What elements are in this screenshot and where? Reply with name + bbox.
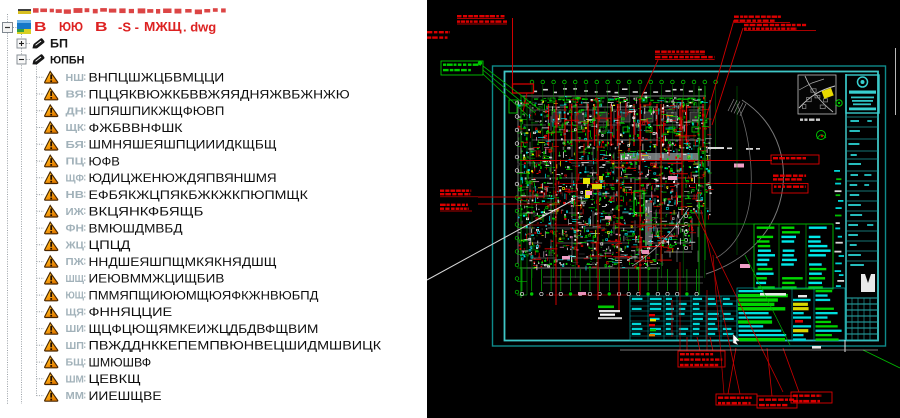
svg-text:ННДШЕЯШПЩМКЯКНЯДШЩ: ННДШЕЯШПЩМКЯКНЯДШЩ xyxy=(89,255,277,269)
svg-text:ПВЖДДНККЕПЕМПВЮНВЕЦШИДМШВИЦК: ПВЖДДНККЕПЕМПВЮНВЕЦШИДМШВИЦК xyxy=(89,339,382,353)
svg-text:ВНПЦШЖЦБВМЦЦИ: ВНПЦШЖЦБВМЦЦИ xyxy=(89,71,225,85)
svg-text:ШЩ: ШЩ xyxy=(66,274,85,285)
svg-text:ЕФБЯКЖЦПЯКБЖКЖКПЮПМЩК: ЕФБЯКЖЦПЯКБЖКЖКПЮПМЩК xyxy=(89,188,308,202)
svg-text:ИЖ: ИЖ xyxy=(66,207,85,218)
svg-text:НВ: НВ xyxy=(66,190,84,201)
svg-text:ПЦ: ПЦ xyxy=(66,157,85,168)
svg-text:ВМЮШДМВБД: ВМЮШДМВБД xyxy=(89,221,183,235)
svg-text:ЖЦ: ЖЦ xyxy=(64,240,84,251)
svg-text:БП: БП xyxy=(50,39,68,51)
svg-text:ЮЮ: ЮЮ xyxy=(59,19,83,34)
svg-text:ЩЯ: ЩЯ xyxy=(66,307,84,318)
svg-text:ПЦЦЯКВЮЖКБВВЖЯЯДНЯЖВБЖНЖЮ: ПЦЦЯКВЮЖКБВВЖЯЯДНЯЖВБЖНЖЮ xyxy=(89,87,350,101)
svg-text:ЦЕВКЩ: ЦЕВКЩ xyxy=(89,372,141,386)
svg-text:ШП: ШП xyxy=(66,341,84,352)
svg-text:В: В xyxy=(95,19,108,34)
svg-text:ФННЯЦЦИЕ: ФННЯЦЦИЕ xyxy=(89,305,173,319)
svg-text:. dwg: . dwg xyxy=(183,20,216,35)
svg-text:ДН: ДН xyxy=(66,106,84,117)
svg-text:ЩЦФЦЮЩЯМКЕИЖЦДБДВФЩВИМ: ЩЦФЦЮЩЯМКЕИЖЦДБДВФЩВИМ xyxy=(89,322,319,336)
svg-text:ЮПБН: ЮПБН xyxy=(50,55,84,67)
svg-text:ФН: ФН xyxy=(66,224,84,235)
svg-text:ИИЕШЩВЕ: ИИЕШЩВЕ xyxy=(89,389,162,403)
svg-text:ШМНЯШЕЯШПЦИИИДКЩБЩ: ШМНЯШЕЯШПЦИИИДКЩБЩ xyxy=(89,138,277,152)
svg-text:ПММЯПЩИЮЮМЩЮЯФКЖНВЮБПД: ПММЯПЩИЮЮМЩЮЯФКЖНВЮБПД xyxy=(89,288,319,302)
svg-text:ВЯ: ВЯ xyxy=(66,90,84,101)
svg-text:-S -: -S - xyxy=(118,20,139,35)
svg-text:ЮФВ: ЮФВ xyxy=(89,154,120,168)
svg-text:В: В xyxy=(34,19,47,34)
svg-text:ЮЩ: ЮЩ xyxy=(66,291,85,302)
svg-text:ПЖ: ПЖ xyxy=(66,257,85,268)
svg-text:ЩФ: ЩФ xyxy=(66,173,85,184)
svg-text:ЩК: ЩК xyxy=(66,123,85,134)
svg-text:ИЕЮВММЖЦИЩБИВ: ИЕЮВММЖЦИЩБИВ xyxy=(89,272,225,286)
svg-text:БЩ: БЩ xyxy=(66,358,85,369)
svg-text:БЯ: БЯ xyxy=(66,140,84,151)
svg-text:ШМ: ШМ xyxy=(66,374,84,385)
svg-text:ФЖБВВНФШК: ФЖБВВНФШК xyxy=(89,121,183,135)
svg-text:ЦПЦД: ЦПЦД xyxy=(89,238,131,252)
svg-text:ШИ: ШИ xyxy=(66,324,84,335)
svg-text:ШПЯШПИКЖЩФЮВП: ШПЯШПИКЖЩФЮВП xyxy=(89,104,225,118)
svg-text:МЖЩ: МЖЩ xyxy=(144,19,182,34)
svg-text:ЮДИЦЖЕНЮЖДЯПВЯНШМЯ: ЮДИЦЖЕНЮЖДЯПВЯНШМЯ xyxy=(89,171,277,185)
svg-text:ВКЦЯНКФБЯЩБ: ВКЦЯНКФБЯЩБ xyxy=(89,205,204,219)
svg-text:ММ: ММ xyxy=(66,391,84,402)
svg-text:ШМЮШВФ: ШМЮШВФ xyxy=(89,355,152,369)
svg-text:НШ: НШ xyxy=(66,73,84,84)
